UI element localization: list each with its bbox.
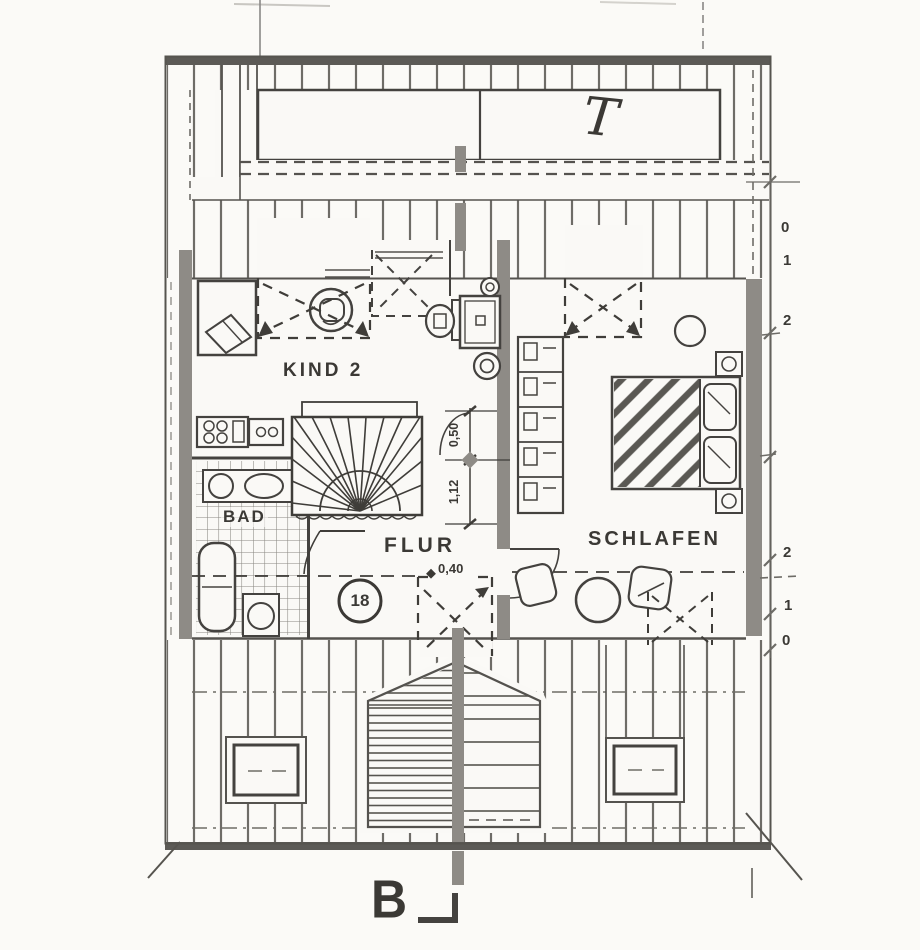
pillow: [704, 384, 736, 430]
dim-sill-height: 0,40: [438, 561, 463, 576]
chair-left: [514, 562, 558, 608]
section-letter: B: [371, 868, 407, 931]
handwritten-t-mark: T: [580, 86, 621, 149]
wardrobe: [518, 337, 563, 513]
dim-upper: 0,50: [447, 414, 461, 456]
oval-washbasin: [245, 474, 283, 498]
round-washbasin: [209, 474, 233, 498]
floor-plan-scan: T KIND 2 BAD FLUR SCHLAFEN 18 0,40 0,50 …: [0, 0, 920, 950]
roof-upper: [165, 56, 771, 278]
attic-space: [258, 90, 720, 160]
room-label-bad: BAD: [221, 507, 268, 527]
toilet-niche: [426, 305, 454, 337]
round-table: [576, 578, 620, 622]
double-bed: [612, 377, 740, 489]
edge-dim-4: 1: [784, 597, 792, 614]
edge-dim-1: 1: [783, 252, 791, 269]
dim-lower: 1,12: [447, 471, 461, 513]
edge-dim-0: 0: [781, 219, 789, 236]
skylight-left: [226, 737, 306, 803]
edge-dim-3: 2: [783, 544, 791, 561]
floor-lamp: [675, 316, 705, 346]
wall-left: [179, 250, 192, 639]
chair-right: [627, 565, 672, 610]
ceiling-light: [474, 353, 500, 379]
wall-right: [746, 279, 762, 636]
room-label-flur: FLUR: [384, 534, 456, 558]
edge-dim-2: 2: [783, 312, 791, 329]
hip-line-left: [148, 842, 180, 878]
floor-drain: [481, 278, 499, 296]
room-label-schlafen: SCHLAFEN: [588, 528, 721, 551]
position-number: 18: [343, 591, 377, 611]
scan-artifacts: [234, 0, 703, 56]
shower: [460, 296, 500, 348]
room-label-kind2: KIND 2: [283, 360, 363, 382]
cooktop-unit: [197, 417, 248, 447]
pillow: [704, 437, 736, 483]
sink-unit: [249, 419, 283, 445]
edge-dim-5: 0: [782, 632, 790, 649]
